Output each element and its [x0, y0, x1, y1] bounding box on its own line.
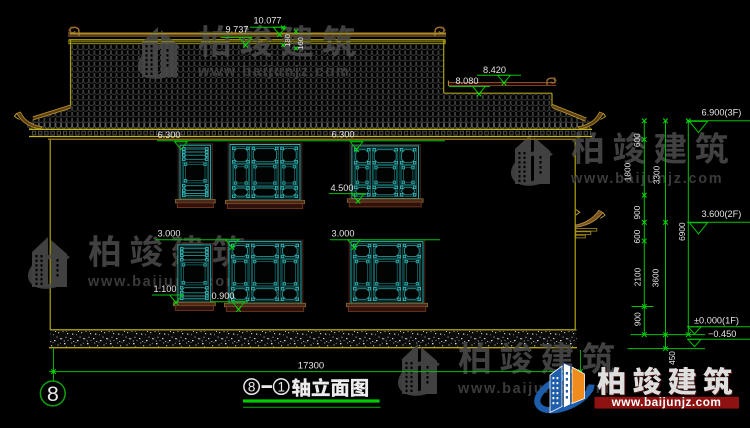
- svg-text:−0.450: −0.450: [708, 329, 736, 339]
- svg-text:8: 8: [47, 382, 59, 406]
- svg-text:600: 600: [632, 133, 642, 147]
- svg-text:3.000: 3.000: [332, 229, 355, 239]
- svg-text:www.baijunjz.com: www.baijunjz.com: [611, 395, 722, 409]
- svg-text:1.100: 1.100: [154, 284, 177, 294]
- svg-text:3600: 3600: [651, 268, 661, 287]
- svg-text:3.600(2F): 3.600(2F): [702, 209, 742, 219]
- svg-text:180: 180: [283, 34, 292, 47]
- svg-text:6.900(3F): 6.900(3F): [702, 108, 742, 118]
- svg-text:900: 900: [632, 205, 642, 219]
- svg-text:3.000: 3.000: [158, 229, 181, 239]
- svg-text:9.737: 9.737: [226, 25, 249, 35]
- svg-text:8.420: 8.420: [483, 65, 506, 75]
- svg-text:600: 600: [632, 229, 642, 243]
- svg-text:0.900: 0.900: [212, 291, 235, 301]
- svg-text:6.300: 6.300: [332, 130, 355, 140]
- svg-text:4.500: 4.500: [331, 183, 354, 193]
- svg-text:900: 900: [633, 312, 643, 326]
- svg-text:1800: 1800: [623, 162, 633, 181]
- svg-text:1: 1: [277, 379, 285, 394]
- svg-text:450: 450: [667, 351, 677, 365]
- svg-text:10.077: 10.077: [253, 16, 281, 26]
- svg-text:160: 160: [296, 37, 305, 50]
- svg-text:3300: 3300: [651, 165, 661, 184]
- svg-text:17300: 17300: [298, 360, 324, 371]
- svg-text:8.080: 8.080: [456, 76, 479, 86]
- svg-text:www.baijunjz.com: www.baijunjz.com: [570, 171, 723, 187]
- svg-text:6900: 6900: [677, 222, 687, 241]
- svg-text:2100: 2100: [633, 267, 643, 286]
- svg-text:8: 8: [248, 379, 256, 394]
- svg-text:www.baijunjz.com: www.baijunjz.com: [197, 64, 350, 80]
- svg-text:±0.000(1F): ±0.000(1F): [694, 316, 739, 326]
- svg-text:6.300: 6.300: [158, 130, 181, 140]
